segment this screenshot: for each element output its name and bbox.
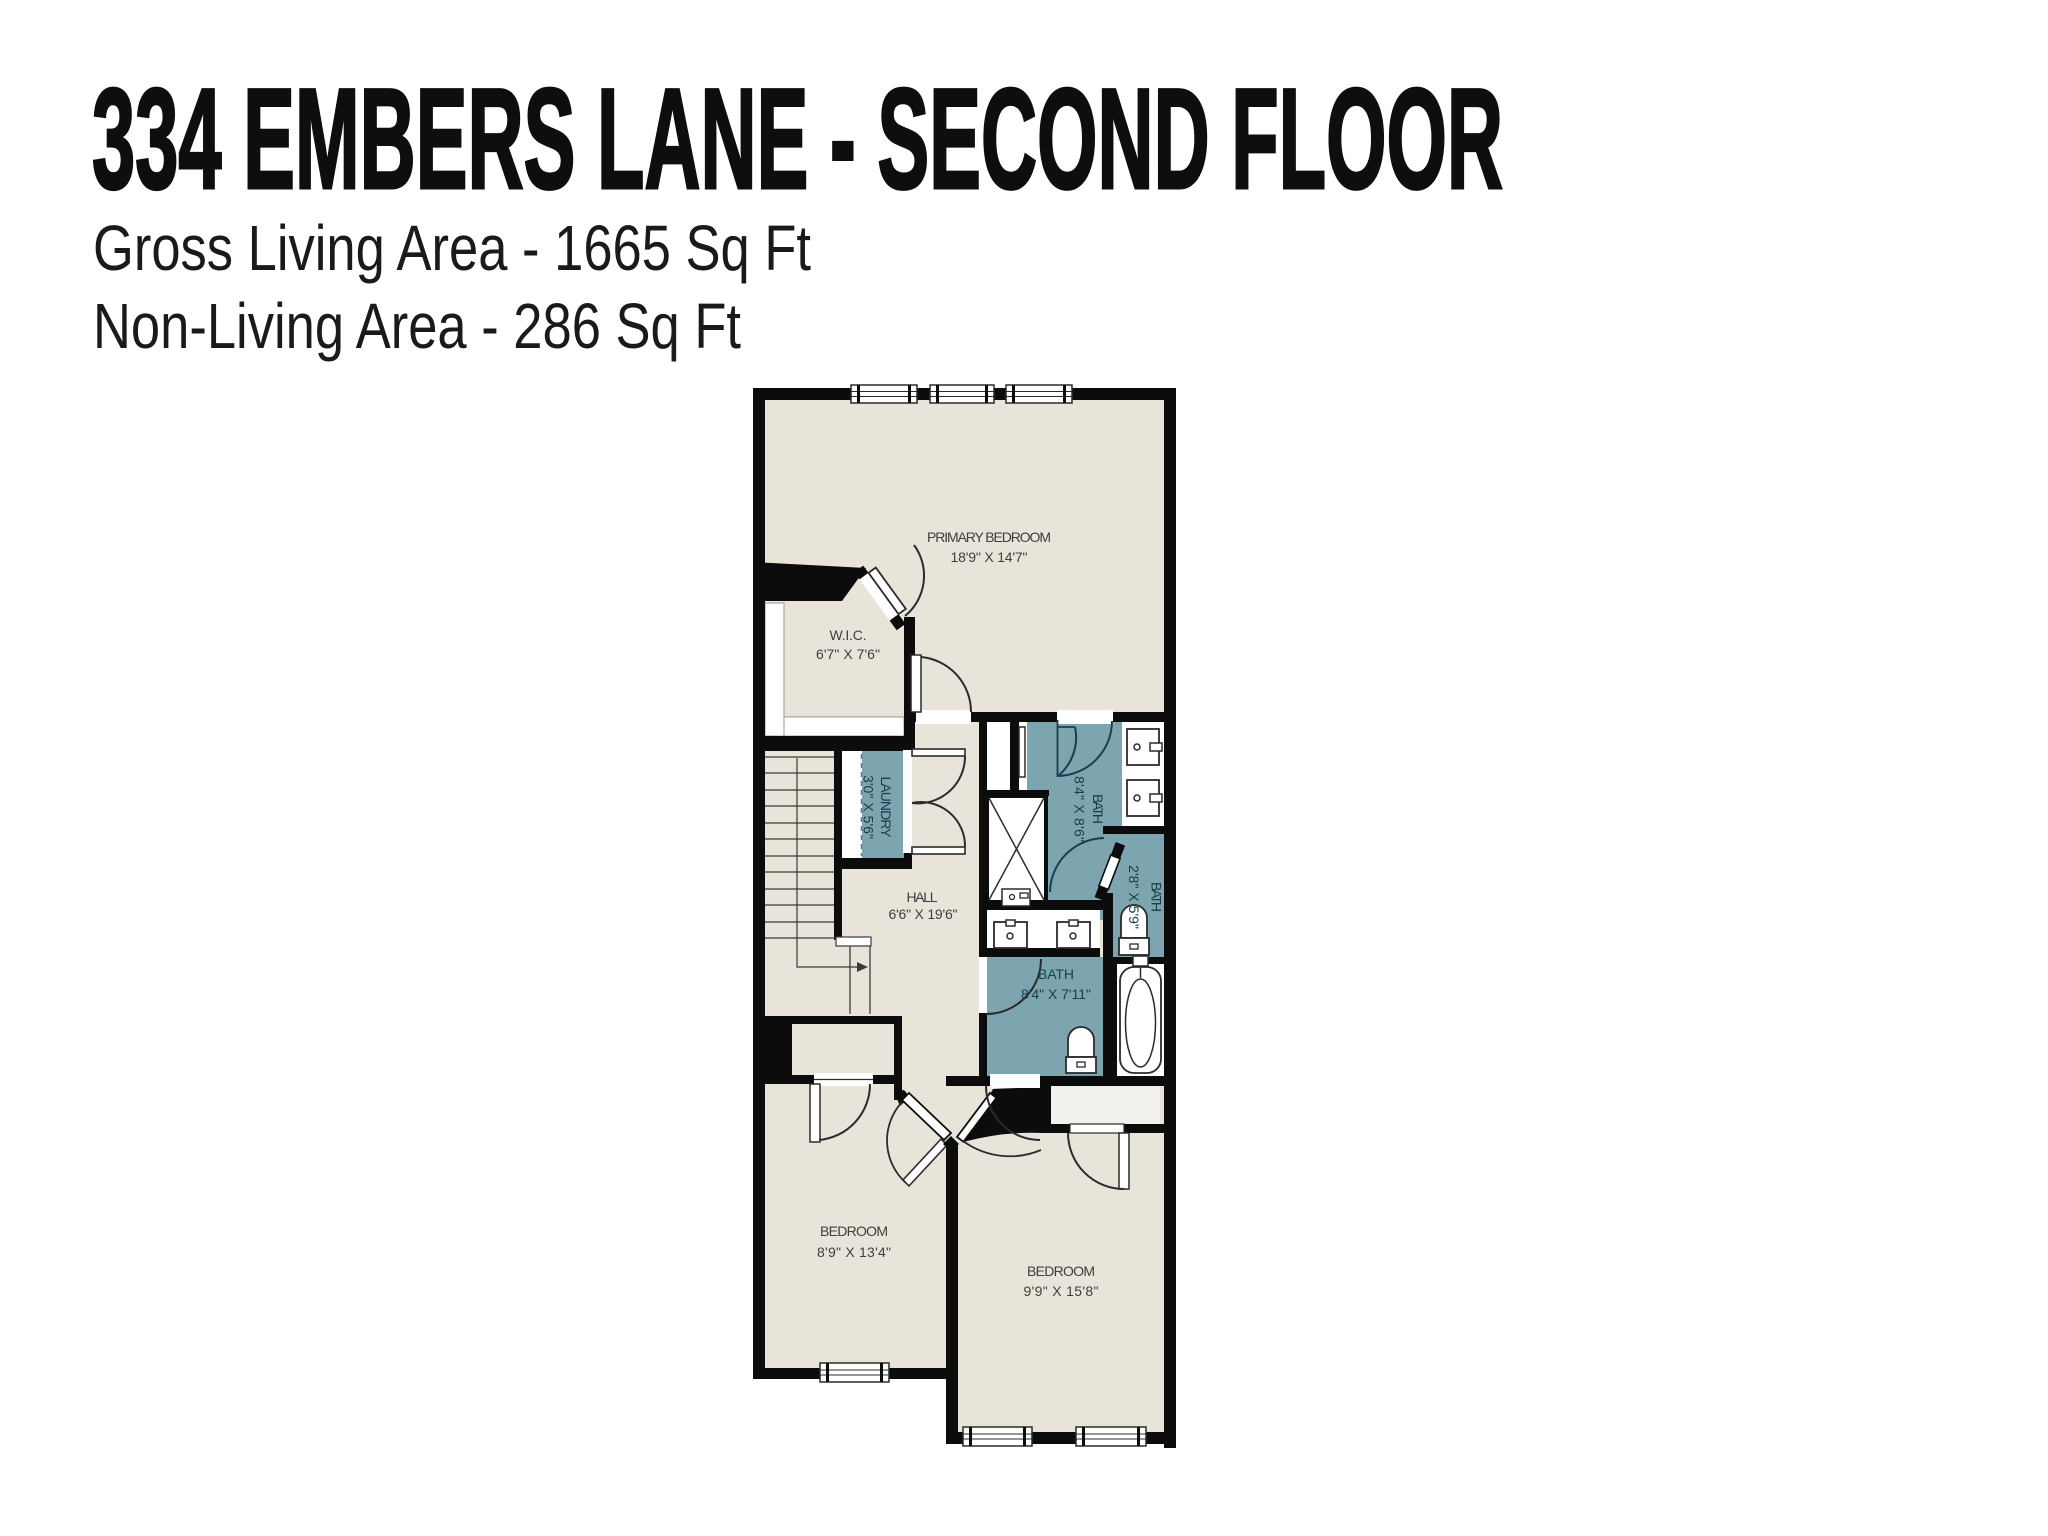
svg-text:BEDROOM: BEDROOM bbox=[820, 1223, 888, 1239]
svg-text:9'9" X 15'8": 9'9" X 15'8" bbox=[1024, 1283, 1099, 1299]
svg-text:BEDROOM: BEDROOM bbox=[1027, 1263, 1095, 1279]
svg-text:18'9" X 14'7": 18'9" X 14'7" bbox=[951, 549, 1028, 565]
svg-text:PRIMARY BEDROOM: PRIMARY BEDROOM bbox=[927, 529, 1051, 545]
svg-text:HALL: HALL bbox=[907, 889, 938, 905]
svg-text:334 EMBERS LANE - SECOND FLOOR: 334 EMBERS LANE - SECOND FLOOR bbox=[92, 60, 1503, 219]
svg-text:LAUNDRY3'0" X 5'6": LAUNDRY3'0" X 5'6" bbox=[861, 775, 895, 839]
svg-text:Non-Living Area - 286 Sq Ft: Non-Living Area - 286 Sq Ft bbox=[93, 290, 741, 362]
svg-text:6'7" X 7'6": 6'7" X 7'6" bbox=[816, 646, 880, 662]
svg-text:8'4" X 7'11": 8'4" X 7'11" bbox=[1021, 986, 1091, 1002]
svg-text:6'6" X 19'6": 6'6" X 19'6" bbox=[889, 906, 958, 922]
svg-text:Gross Living Area - 1665 Sq Ft: Gross Living Area - 1665 Sq Ft bbox=[93, 212, 811, 284]
svg-text:W.I.C.: W.I.C. bbox=[830, 627, 867, 643]
svg-text:8'9" X 13'4": 8'9" X 13'4" bbox=[817, 1244, 891, 1260]
svg-text:BATH: BATH bbox=[1038, 966, 1074, 982]
